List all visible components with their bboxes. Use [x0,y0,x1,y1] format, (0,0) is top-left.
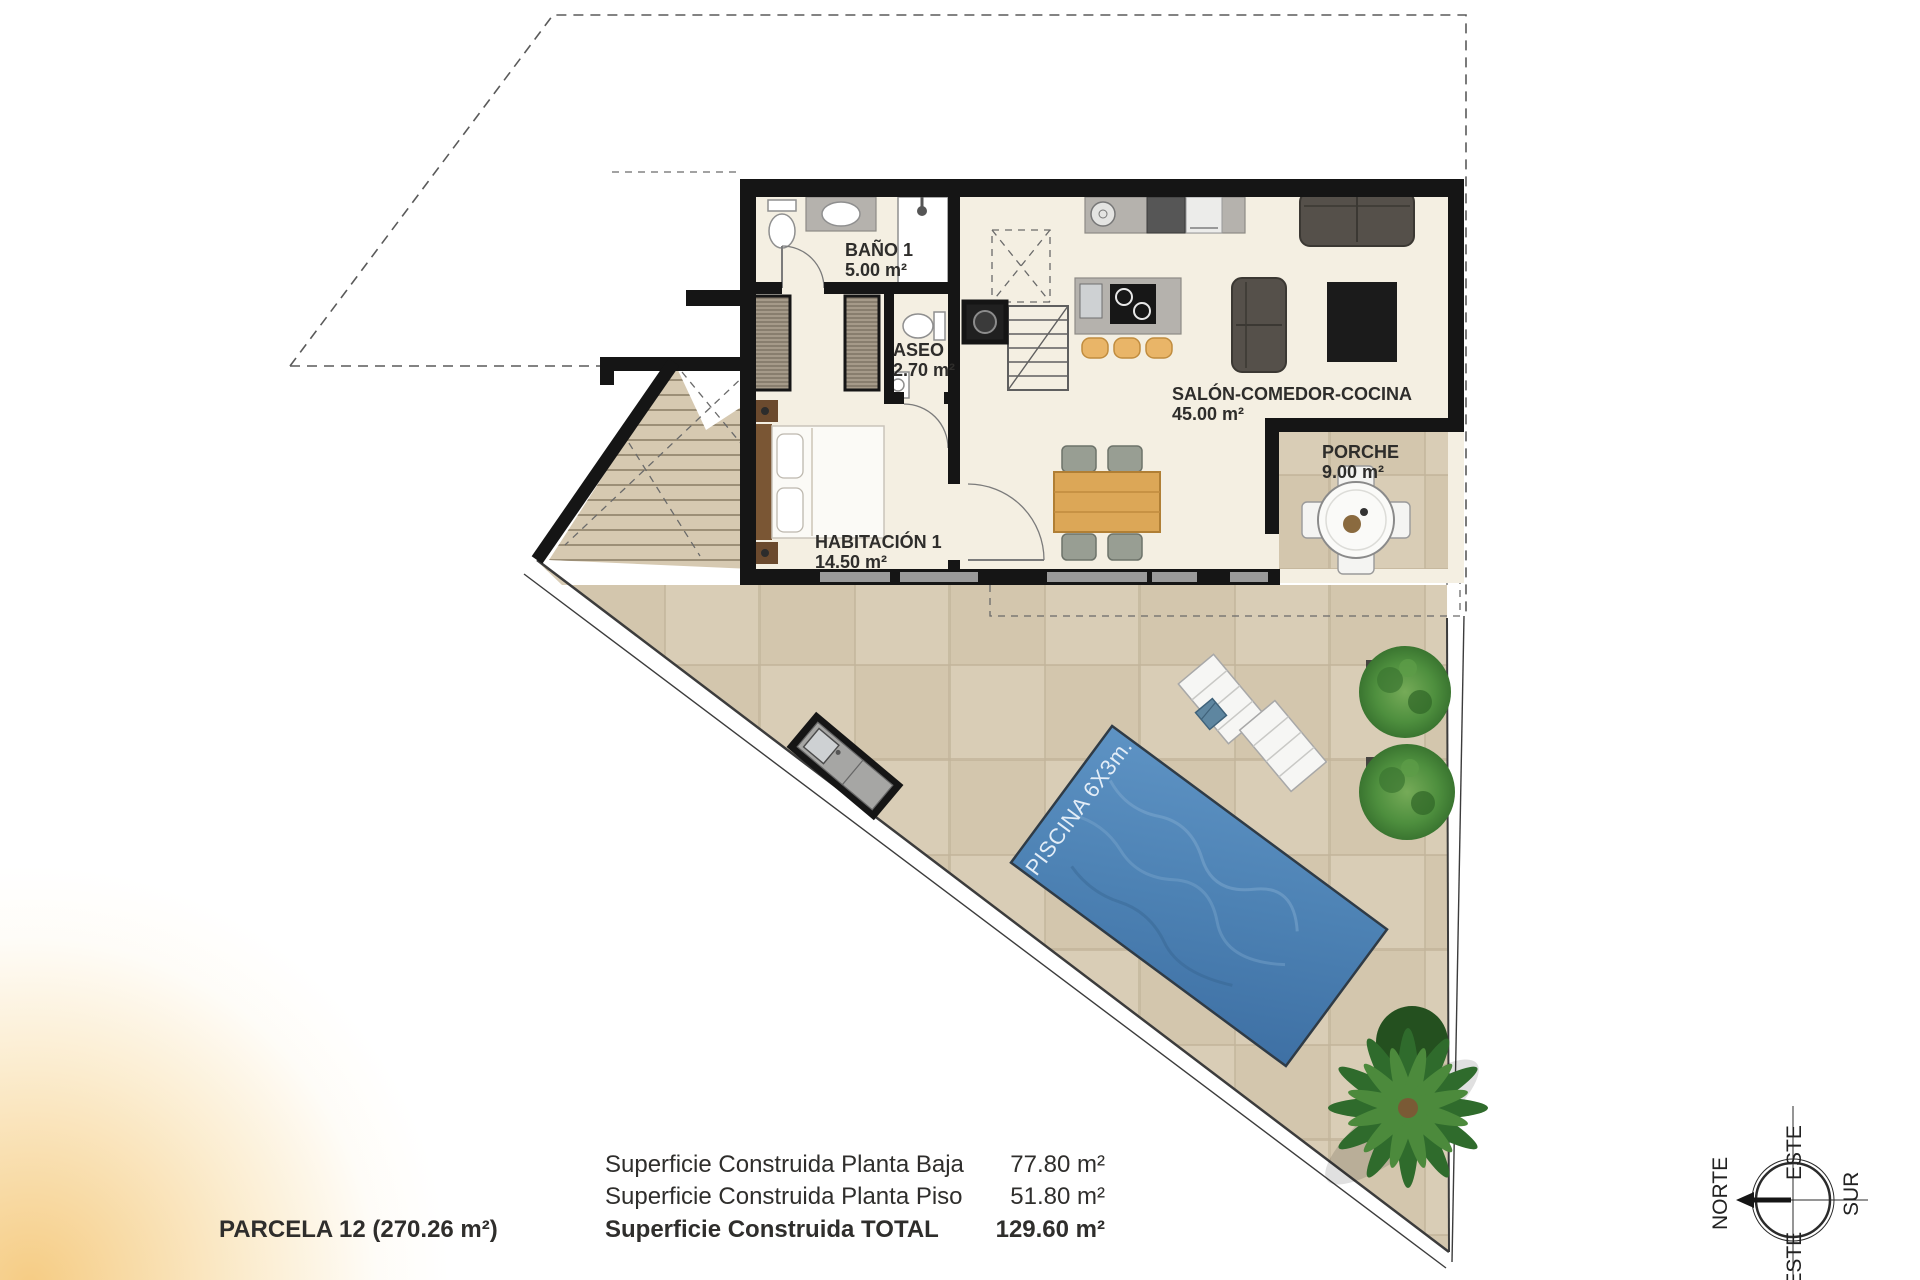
compass-west-label: OESTE [1783,1232,1806,1280]
summary-row-value: 129.60 m² [996,1216,1105,1243]
washing-machine [964,302,1006,342]
aseo-toilet-tank [934,312,945,340]
fridge [1147,197,1185,233]
floor-plan-drawing: BAÑO 1 5.00 m² ASEO 2.70 m² HABITACIÓN 1… [0,0,1920,1280]
house: BAÑO 1 5.00 m² ASEO 2.70 m² HABITACIÓN 1… [686,179,1464,585]
sofa-side [1232,278,1286,372]
room-area-aseo: 2.70 m² [893,360,955,380]
summary-row-value: 77.80 m² [1010,1151,1105,1178]
pillow [777,434,803,478]
cooktop [1110,284,1156,324]
room-area-banyo1: 5.00 m² [845,260,907,280]
summary-row-label: Superficie Construida TOTAL [605,1216,939,1243]
tree-icon [1359,646,1451,738]
kitchen-sink [1091,202,1115,226]
room-area-salon: 45.00 m² [1172,404,1244,424]
summary-row-label: Superficie Construida Planta Piso [605,1183,963,1210]
pillow [777,488,803,532]
room-label-habitacion1: HABITACIÓN 1 [815,531,942,552]
compass-south-label: SUR [1840,1172,1863,1216]
compass-rose: NORTE ESTE SUR OESTE [1709,1106,1868,1280]
sofa-top [1300,192,1414,246]
parcel-title: PARCELA 12 (270.26 m²) [219,1216,498,1243]
tv-rug [1327,282,1397,362]
dining-table [1054,472,1160,532]
bar-stools [1082,338,1172,358]
floor-plan-page: BAÑO 1 5.00 m² ASEO 2.70 m² HABITACIÓN 1… [0,0,1920,1280]
toilet-bowl [769,214,795,248]
tree-icon [1359,744,1455,840]
compass-east-label: ESTE [1783,1125,1806,1180]
room-label-aseo: ASEO [893,340,944,360]
room-label-banyo1: BAÑO 1 [845,239,913,260]
exterior-stairs [537,357,752,569]
surface-summary: PARCELA 12 (270.26 m²) Superficie Constr… [219,1151,1105,1243]
room-label-salon: SALÓN-COMEDOR-COCINA [1172,383,1412,404]
room-area-habitacion1: 14.50 m² [815,552,887,572]
aseo-toilet-bowl [903,314,933,338]
room-area-porche: 9.00 m² [1322,462,1384,482]
compass-north-label: NORTE [1709,1157,1732,1230]
summary-row-value: 51.80 m² [1010,1183,1105,1210]
vanity-sink [822,202,860,226]
toilet-tank [768,200,796,211]
island-sink [1080,284,1102,318]
north-arrow-icon [1736,1192,1754,1208]
room-label-porche: PORCHE [1322,442,1399,462]
summary-row-label: Superficie Construida Planta Baja [605,1151,965,1178]
